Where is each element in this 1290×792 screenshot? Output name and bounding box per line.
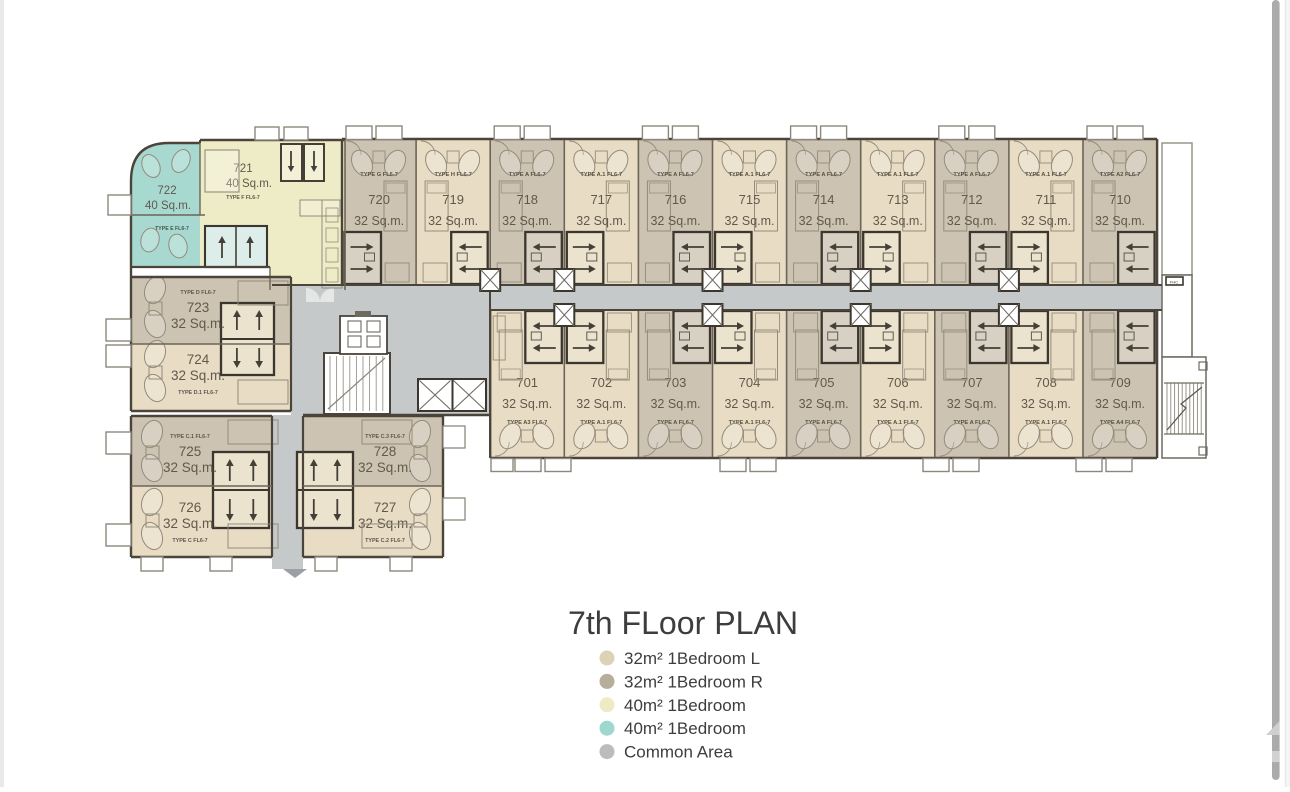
svg-text:TYPE E FL6-7: TYPE E FL6-7 [155,226,189,232]
svg-text:40m² 1Bedroom: 40m² 1Bedroom [624,696,746,715]
svg-text:710: 710 [1109,192,1131,207]
svg-text:TYPE A.1 FL6-7: TYPE A.1 FL6-7 [580,172,622,178]
svg-text:32 Sq.m.: 32 Sq.m. [947,397,997,411]
svg-text:32m² 1Bedroom R: 32m² 1Bedroom R [624,672,763,691]
svg-text:32 Sq.m.: 32 Sq.m. [724,397,774,411]
svg-text:TYPE A.1 FL6-7: TYPE A.1 FL6-7 [877,172,919,178]
svg-text:32 Sq.m.: 32 Sq.m. [358,460,412,475]
svg-text:32 Sq.m.: 32 Sq.m. [947,214,997,228]
svg-text:TYPE A FL6-7: TYPE A FL6-7 [805,172,842,178]
svg-text:TYPE C.3 FL6-7: TYPE C.3 FL6-7 [365,434,405,440]
svg-text:32m² 1Bedroom L: 32m² 1Bedroom L [624,649,760,668]
svg-text:705: 705 [813,375,835,390]
svg-text:701: 701 [516,375,538,390]
svg-text:702: 702 [590,375,612,390]
svg-text:32 Sq.m.: 32 Sq.m. [1021,214,1071,228]
svg-text:TYPE A.1 FL6-7: TYPE A.1 FL6-7 [729,172,771,178]
svg-text:722: 722 [157,185,176,197]
svg-text:FHC: FHC [1170,280,1178,285]
svg-text:714: 714 [813,192,835,207]
svg-text:32 Sq.m.: 32 Sq.m. [1095,397,1145,411]
svg-text:32 Sq.m.: 32 Sq.m. [428,214,478,228]
svg-text:TYPE H FL6-7: TYPE H FL6-7 [434,172,471,178]
svg-text:32 Sq.m.: 32 Sq.m. [171,368,225,383]
svg-text:32 Sq.m.: 32 Sq.m. [650,214,700,228]
svg-text:40 Sq.m.: 40 Sq.m. [145,200,191,212]
svg-text:718: 718 [516,192,538,207]
svg-text:32 Sq.m.: 32 Sq.m. [502,397,552,411]
svg-text:727: 727 [374,500,397,515]
svg-text:32 Sq.m.: 32 Sq.m. [650,397,700,411]
svg-text:32 Sq.m.: 32 Sq.m. [354,214,404,228]
svg-text:708: 708 [1035,375,1057,390]
svg-text:32 Sq.m.: 32 Sq.m. [873,397,923,411]
svg-text:712: 712 [961,192,983,207]
svg-text:32 Sq.m.: 32 Sq.m. [576,214,626,228]
svg-text:32 Sq.m.: 32 Sq.m. [163,516,217,531]
svg-text:TYPE D.1 FL6-7: TYPE D.1 FL6-7 [178,390,218,396]
svg-text:Common Area: Common Area [624,743,733,762]
svg-text:724: 724 [187,352,210,367]
svg-text:7th FLoor PLAN: 7th FLoor PLAN [568,605,798,641]
svg-text:703: 703 [665,375,687,390]
svg-text:32 Sq.m.: 32 Sq.m. [576,397,626,411]
svg-text:32 Sq.m.: 32 Sq.m. [873,214,923,228]
svg-text:719: 719 [442,192,464,207]
svg-text:725: 725 [179,444,202,459]
svg-text:32 Sq.m.: 32 Sq.m. [799,214,849,228]
svg-text:723: 723 [187,300,210,315]
svg-text:TYPE C.1 FL6-7: TYPE C.1 FL6-7 [170,434,210,440]
svg-text:32 Sq.m.: 32 Sq.m. [163,460,217,475]
svg-text:TYPE C FL6-7: TYPE C FL6-7 [172,538,207,544]
svg-text:707: 707 [961,375,983,390]
svg-text:TYPE A.1 FL6-7: TYPE A.1 FL6-7 [1025,172,1067,178]
svg-text:715: 715 [739,192,761,207]
svg-text:709: 709 [1109,375,1131,390]
svg-text:TYPE G FL6-7: TYPE G FL6-7 [360,172,398,178]
svg-text:TYPE A FL6-7: TYPE A FL6-7 [953,172,990,178]
svg-text:32 Sq.m.: 32 Sq.m. [171,316,225,331]
svg-text:713: 713 [887,192,909,207]
svg-text:726: 726 [179,500,202,515]
svg-text:704: 704 [739,375,761,390]
svg-text:717: 717 [590,192,612,207]
svg-text:TYPE A2 FL6-7: TYPE A2 FL6-7 [1100,172,1140,178]
svg-text:716: 716 [665,192,687,207]
svg-text:32 Sq.m.: 32 Sq.m. [1095,214,1145,228]
svg-text:TYPE D FL6-7: TYPE D FL6-7 [180,290,215,296]
svg-text:TYPE C.2 FL6-7: TYPE C.2 FL6-7 [365,538,405,544]
svg-text:32 Sq.m.: 32 Sq.m. [1021,397,1071,411]
svg-text:TYPE A FL6-7: TYPE A FL6-7 [509,172,546,178]
svg-text:32 Sq.m.: 32 Sq.m. [799,397,849,411]
svg-text:TYPE F FL6-7: TYPE F FL6-7 [226,195,260,201]
svg-text:711: 711 [1036,192,1057,207]
svg-text:706: 706 [887,375,909,390]
svg-text:32 Sq.m.: 32 Sq.m. [502,214,552,228]
svg-text:720: 720 [368,192,390,207]
svg-text:32 Sq.m.: 32 Sq.m. [724,214,774,228]
svg-text:728: 728 [374,444,397,459]
svg-text:TYPE A FL6-7: TYPE A FL6-7 [657,172,694,178]
svg-text:40m² 1Bedroom: 40m² 1Bedroom [624,719,746,738]
